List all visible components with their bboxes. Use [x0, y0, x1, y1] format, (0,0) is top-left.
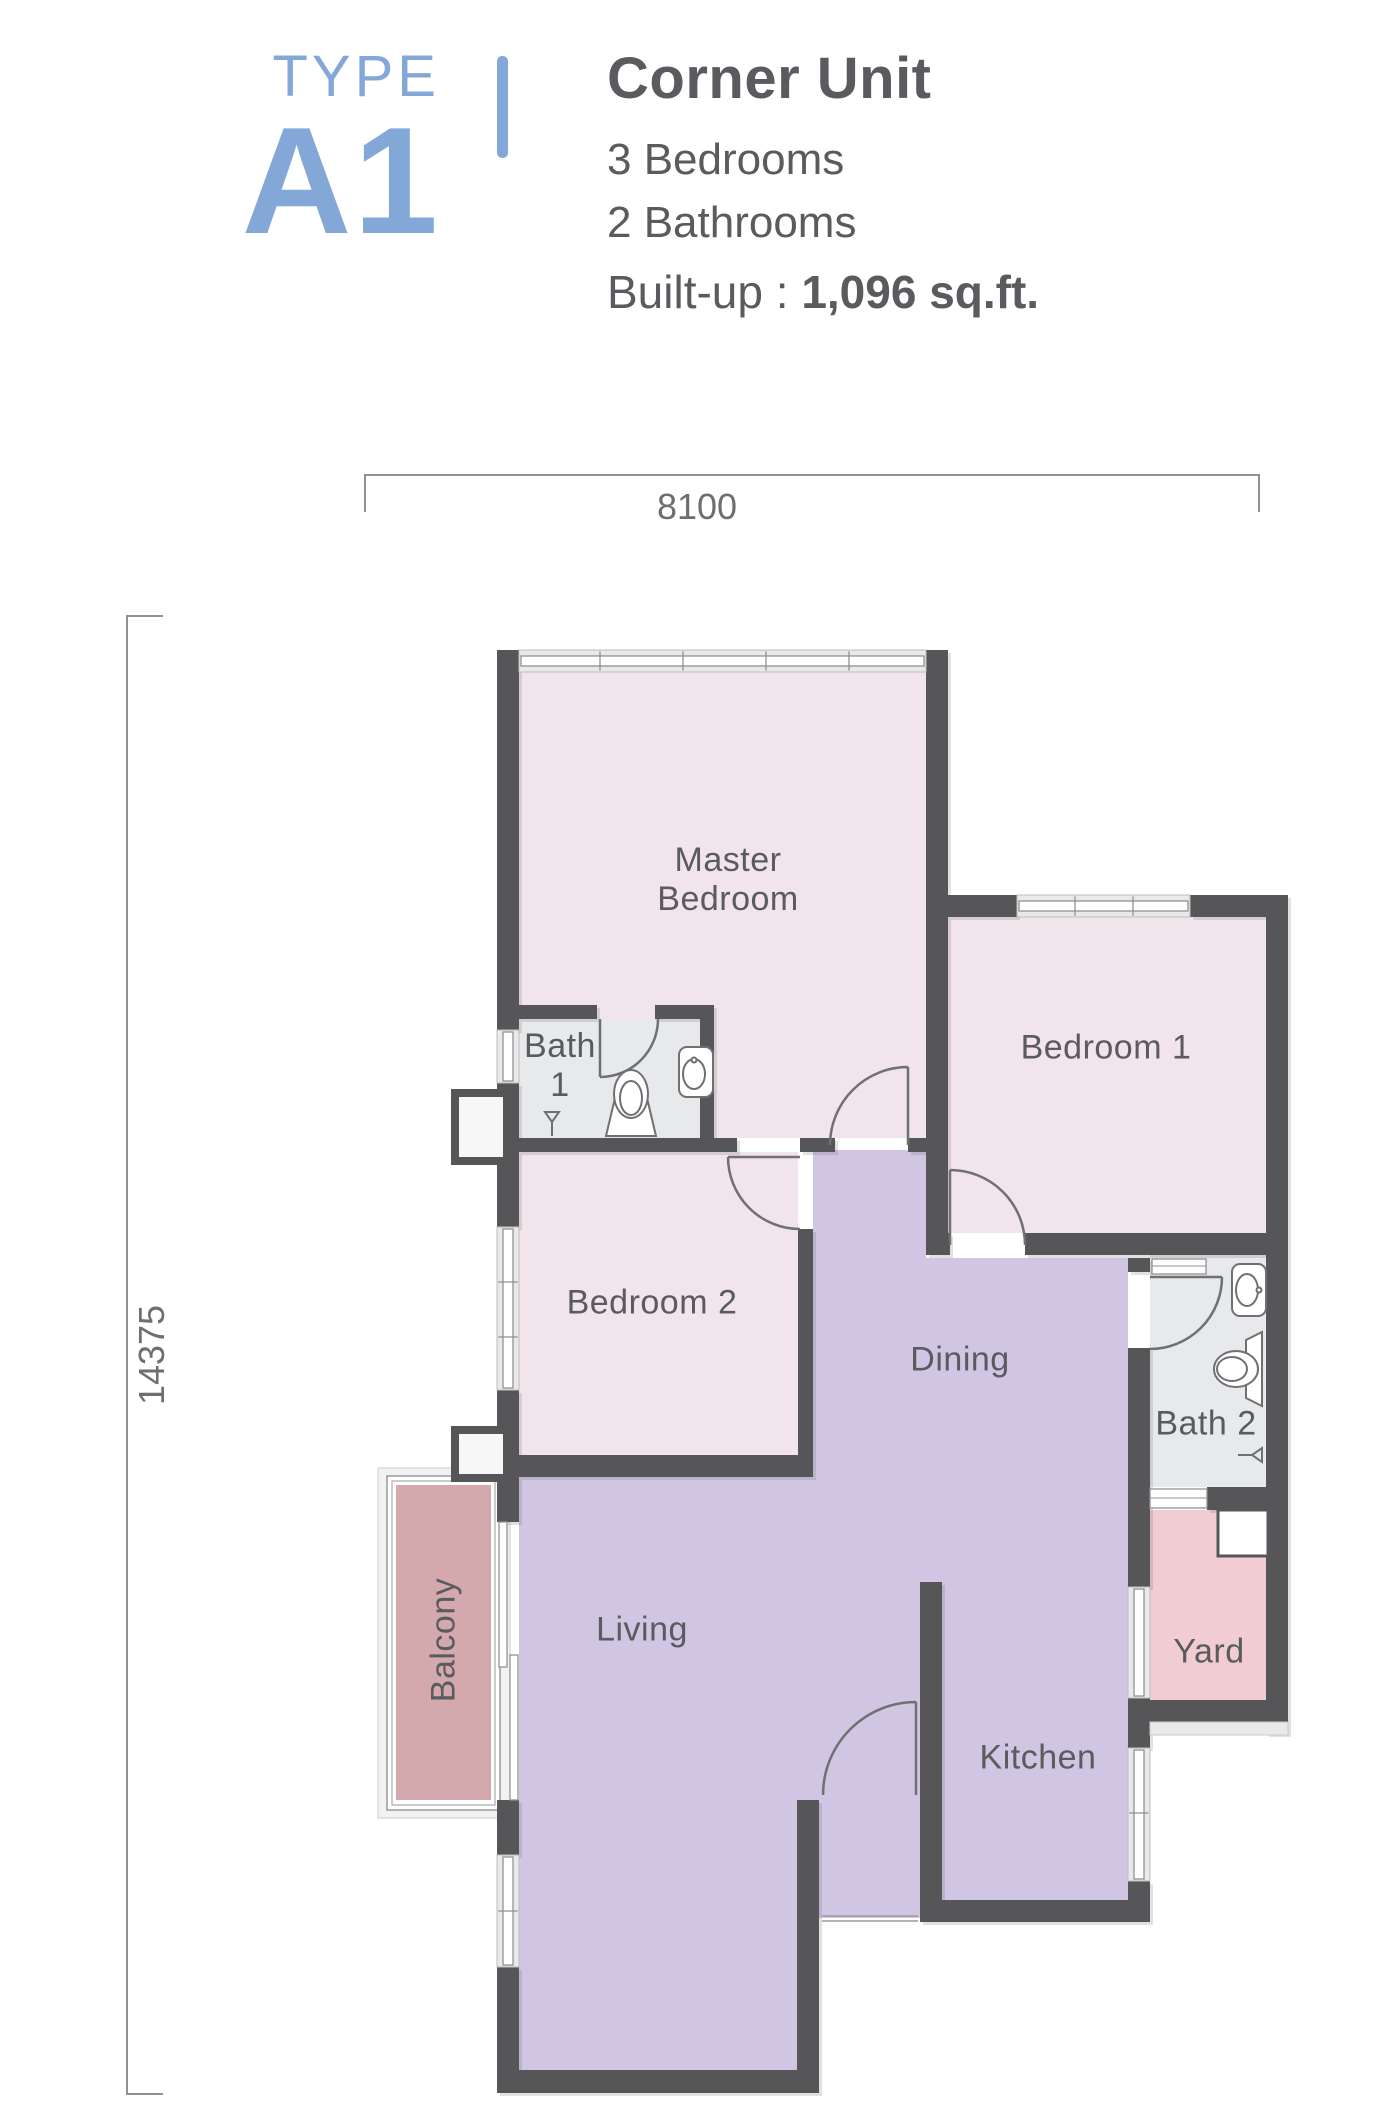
bath2-vent: [1152, 1259, 1206, 1274]
label-yard: Yard: [1139, 1632, 1279, 1671]
label-master-bedroom: Master Bedroom: [643, 841, 813, 919]
bath2-sink-icon: [1232, 1264, 1266, 1316]
label-bedroom1: Bedroom 1: [981, 1028, 1231, 1067]
yard-outer-ledge: [1150, 1722, 1288, 1735]
label-balcony: Balcony: [424, 1540, 463, 1740]
bedroom1-window: [1017, 895, 1190, 917]
bedroom2-window: [497, 1227, 519, 1390]
entrance-threshold: [822, 1916, 918, 1921]
label-bath2: Bath 2: [1136, 1404, 1276, 1443]
master-bedroom-window: [519, 650, 926, 672]
yard-recess: [1218, 1510, 1268, 1556]
dimension-height: 14375: [131, 1305, 173, 1405]
label-kitchen: Kitchen: [938, 1738, 1138, 1777]
bath1-window: [497, 1030, 519, 1083]
floorplan-page: TYPE A1 Corner Unit 3 Bedrooms 2 Bathroo…: [0, 0, 1400, 2114]
dimension-line-top: [365, 475, 1259, 512]
ac-ledge-1: [451, 1089, 509, 1165]
label-dining: Dining: [860, 1340, 1060, 1379]
ac-ledge-2: [451, 1426, 509, 1482]
label-living: Living: [542, 1610, 742, 1649]
bath2-louvre-window: [1150, 1489, 1207, 1508]
label-bath1: Bath 1: [520, 1027, 600, 1105]
dimension-width: 8100: [657, 486, 737, 528]
bath1-sink-icon: [679, 1047, 713, 1097]
label-bedroom2: Bedroom 2: [527, 1283, 777, 1322]
living-window: [497, 1855, 519, 1967]
